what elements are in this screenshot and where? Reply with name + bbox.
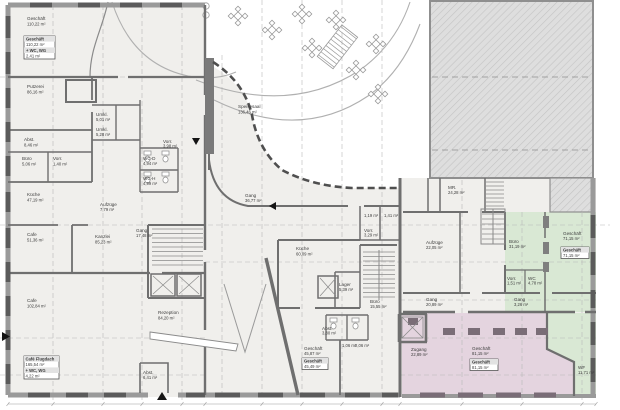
table-icon [262, 20, 282, 40]
label-box-sw: Café Flugdach165,54 m²+ WC, WG4,22 m² [24, 356, 59, 379]
table-icon [292, 4, 312, 24]
room-label-geschaeft-gr: Geschäft71,15 m² [563, 231, 582, 241]
table-icon [326, 10, 346, 30]
green-unit-pillars [543, 216, 549, 272]
label-box-mid: Geschäft45,49 m² [302, 358, 328, 370]
table-icon [366, 34, 386, 54]
room-label-geschaeft-nw: Geschäft110,22 m² [27, 16, 46, 27]
room-label-wc-1: 1,19 m² [364, 213, 379, 218]
table-icon [228, 6, 248, 26]
room-label-wc-4: 2,06 m² [355, 343, 370, 348]
svg-text:Geschäft45,49 m²: Geschäft45,49 m² [304, 359, 323, 370]
svg-text:Geschäft71,15 m²: Geschäft71,15 m² [563, 248, 582, 259]
room-label-geschaeft-m: Geschäft45,87 m² [304, 346, 323, 356]
room-label-wc-2: 1,41 m² [384, 213, 399, 218]
svg-text:Geschäft81,15 m²: Geschäft81,15 m² [472, 360, 491, 371]
room-label-zugang: Zugang22,89 m² [411, 347, 428, 357]
floor-plan-page: Geschäft110,22 m² Putzerei86,16 m² Abst.… [0, 0, 620, 410]
label-box-green: Geschäft71,15 m² [561, 247, 589, 259]
label-box-pink: Geschäft81,15 m² [470, 359, 498, 371]
room-label-kanzlei: Kanzlei85,23 m² [95, 234, 112, 245]
room-label-geschaeft-pk: Geschäft81,15 m² [472, 346, 491, 356]
floor-plan: Geschäft110,22 m² Putzerei86,16 m² Abst.… [0, 0, 620, 410]
room-label-putzerei: Putzerei86,16 m² [27, 84, 44, 95]
dimension-line [7, 402, 598, 406]
room-label-aufzuege-e: Aufzüge22,05 m² [426, 240, 443, 250]
label-box-nw: Geschäft110,22 m²+ WC, WG2,41 m² [24, 36, 55, 59]
